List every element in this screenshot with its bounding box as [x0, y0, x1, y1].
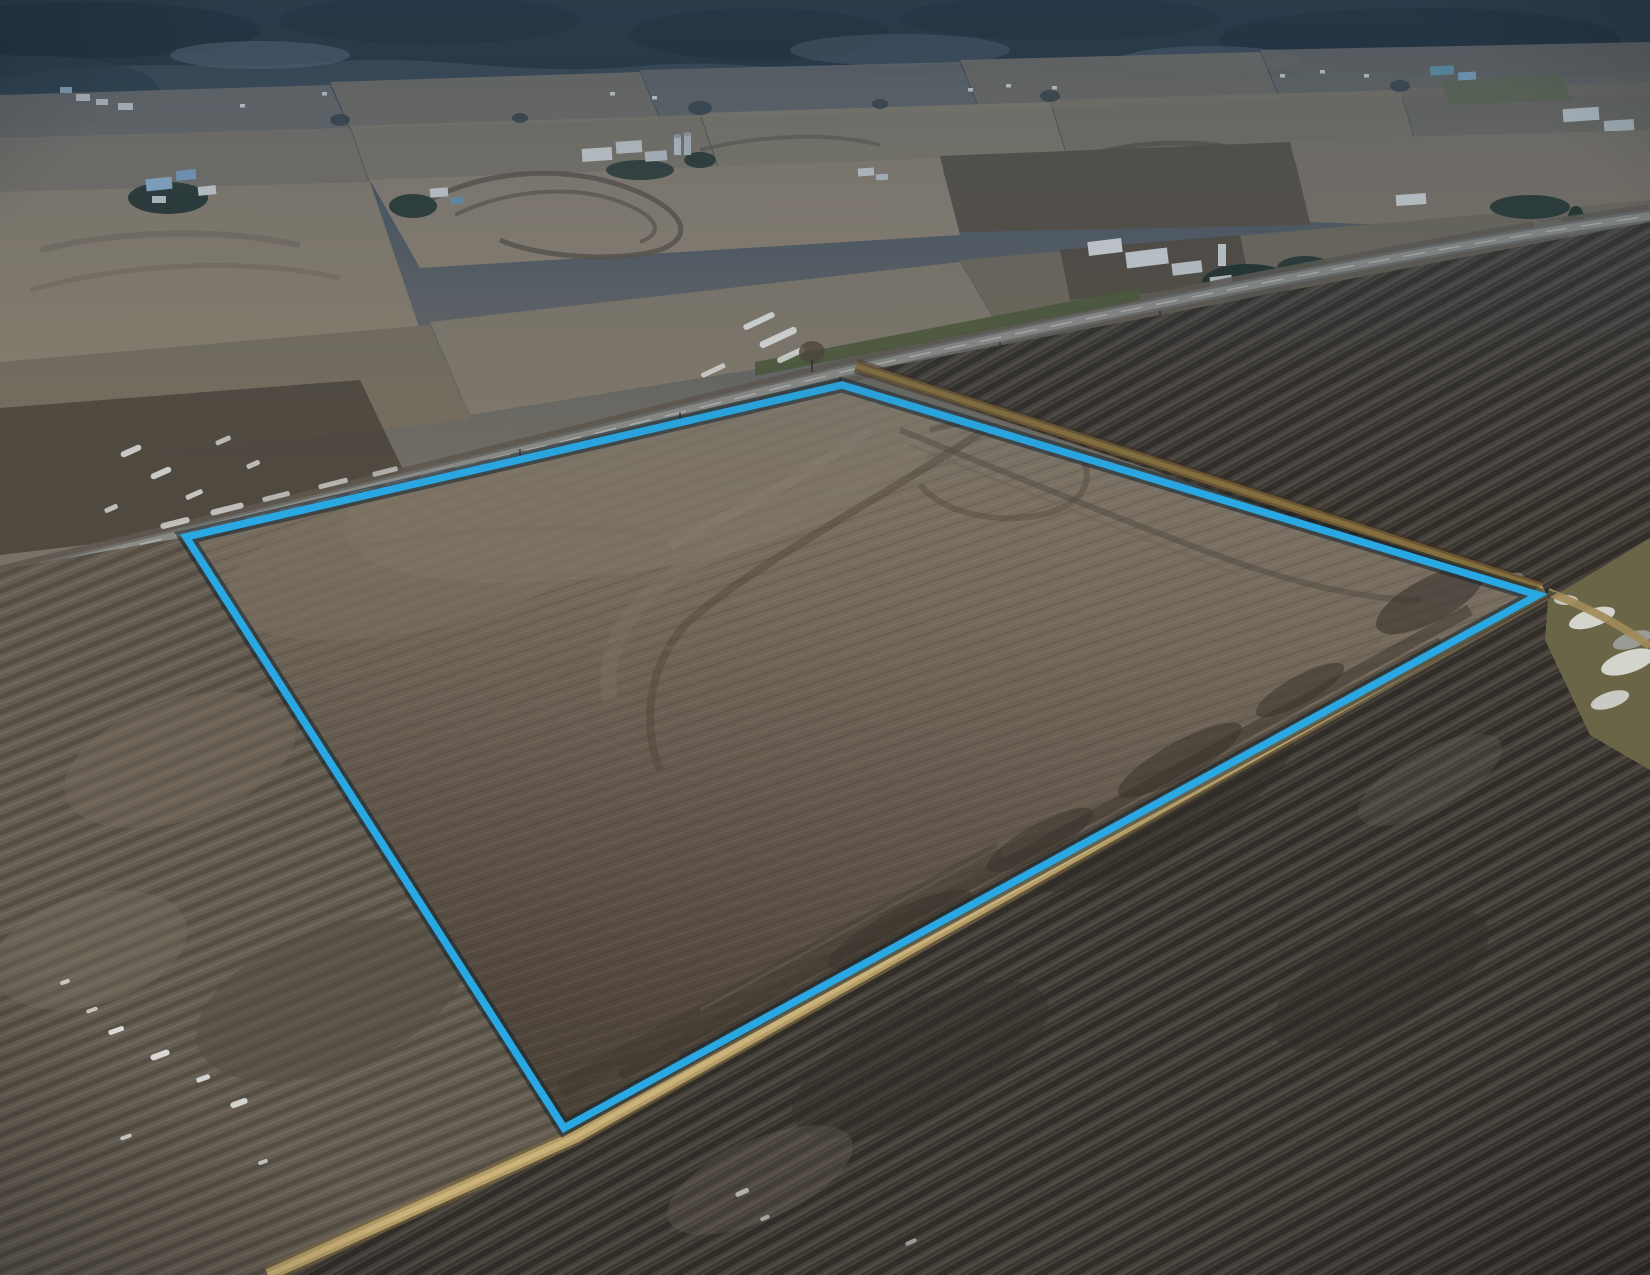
aerial-photo-canvas — [0, 0, 1650, 1275]
aerial-photo — [0, 0, 1650, 1275]
vignette — [0, 0, 1650, 1275]
